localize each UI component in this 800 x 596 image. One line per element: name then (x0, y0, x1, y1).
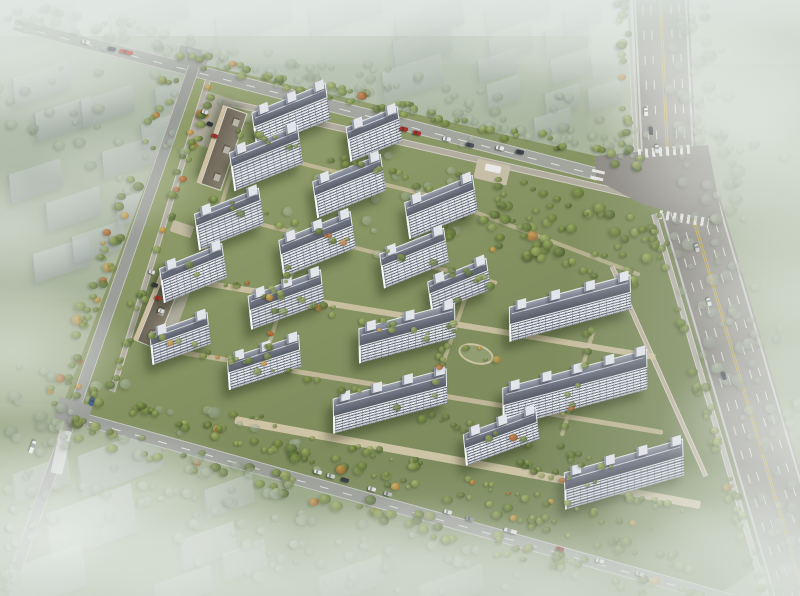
tree (793, 400, 800, 406)
tree (415, 75, 424, 82)
tree (75, 435, 84, 443)
tree (290, 477, 296, 482)
tree (558, 94, 564, 99)
city-ground-northwest (0, 36, 588, 298)
vehicle (466, 142, 475, 148)
tree (402, 108, 407, 112)
tree (737, 522, 745, 529)
tree (357, 504, 363, 509)
tree (103, 263, 114, 272)
tree (691, 212, 701, 221)
tree (250, 424, 260, 432)
tree (622, 537, 632, 546)
faded-building (44, 186, 102, 232)
tree (567, 224, 577, 233)
tree (1, 570, 12, 579)
tree (56, 403, 67, 413)
tree (675, 562, 685, 571)
tree (366, 88, 376, 96)
faded-building (380, 53, 444, 103)
tree (566, 533, 571, 537)
tree (462, 118, 468, 123)
tree (777, 325, 784, 331)
vehicle (400, 126, 409, 132)
tree (594, 542, 602, 549)
tree (329, 312, 335, 317)
mist-patch (675, 210, 800, 390)
tree (75, 302, 85, 311)
roof-bulkhead (284, 230, 295, 243)
tree (652, 497, 658, 502)
tree (493, 356, 502, 363)
vehicle-glass (343, 478, 346, 482)
tree (367, 75, 376, 82)
tree (489, 488, 493, 491)
vehicle (327, 473, 336, 479)
tree (664, 241, 669, 246)
tree (373, 250, 383, 258)
tree (680, 95, 692, 105)
tree (163, 44, 170, 50)
tree (296, 515, 308, 526)
tree (182, 488, 193, 498)
tree (230, 201, 236, 206)
tree (48, 438, 58, 446)
vehicle-glass (213, 134, 216, 138)
tree (444, 228, 456, 238)
tree (371, 508, 377, 513)
tree (410, 458, 416, 463)
tree (650, 577, 660, 586)
tree (731, 492, 737, 497)
tree (393, 404, 402, 411)
site-drive-left (109, 79, 211, 393)
tree (362, 216, 373, 225)
rooftop-unit (148, 331, 156, 340)
tree (675, 307, 681, 312)
tree (627, 214, 634, 220)
tree (286, 227, 297, 236)
tree (133, 405, 141, 412)
vehicle (556, 546, 565, 552)
roof-bulkhead (469, 423, 480, 436)
tree (73, 354, 83, 362)
tree (118, 19, 128, 27)
tree (615, 244, 621, 249)
tree (79, 418, 87, 424)
mist-patch (585, 460, 800, 580)
tree (728, 308, 737, 316)
tree (630, 281, 639, 288)
tree (196, 110, 205, 118)
vehicle-glass (695, 246, 699, 249)
tree (631, 228, 641, 236)
vehicle-glass (122, 49, 126, 54)
vehicle-glass (722, 374, 726, 377)
faded-building (153, 74, 203, 114)
tree (695, 389, 703, 395)
faded-building (221, 539, 268, 581)
lane-line (716, 197, 800, 592)
tree (52, 401, 58, 406)
building (379, 228, 449, 289)
roof-ridge (430, 264, 485, 287)
tree (251, 438, 259, 445)
tree (751, 283, 761, 292)
tree (566, 203, 572, 208)
tree (678, 14, 684, 19)
tree (620, 252, 627, 258)
tree (562, 570, 570, 577)
tree (446, 234, 454, 241)
tree (436, 364, 443, 370)
tree (49, 422, 60, 432)
tree (17, 364, 23, 369)
tree (371, 228, 377, 233)
tree (168, 191, 177, 199)
tree (10, 506, 18, 513)
tree (722, 135, 728, 140)
tree (626, 495, 635, 503)
tree (639, 589, 645, 594)
tree (202, 467, 212, 476)
crosswalk (638, 144, 691, 157)
tree (565, 94, 574, 102)
tree (514, 133, 519, 138)
tree (37, 421, 49, 431)
faded-building (114, 183, 170, 227)
tree (211, 196, 218, 202)
vehicle (636, 571, 645, 577)
tree (113, 375, 119, 381)
tree (340, 463, 350, 471)
tree (734, 178, 743, 186)
tree (115, 138, 124, 145)
lane-line (684, 0, 693, 154)
tree (196, 56, 204, 63)
roof-bulkhead (246, 184, 257, 197)
roof-bulkhead (200, 203, 211, 216)
faded-building (11, 60, 71, 107)
tree (328, 158, 335, 164)
tree (234, 441, 240, 446)
tree (443, 414, 450, 420)
tree (6, 426, 18, 437)
tree (445, 555, 454, 563)
tree (702, 180, 713, 190)
tree (357, 388, 363, 393)
vehicle-glass (445, 137, 448, 141)
tree (196, 121, 205, 129)
tree (298, 510, 306, 517)
lane-line (662, 213, 779, 596)
tree (29, 124, 39, 133)
mist-patch (290, 495, 550, 596)
tree (428, 109, 436, 116)
tree (781, 153, 791, 161)
park-walk (469, 208, 640, 276)
tree (419, 461, 423, 465)
tree (569, 402, 576, 408)
tree (627, 120, 634, 126)
tree (203, 102, 212, 110)
tree (193, 459, 201, 466)
tree (90, 381, 102, 391)
tree (717, 91, 723, 96)
tree (768, 413, 781, 424)
tree (689, 114, 702, 125)
building-facade (253, 98, 330, 149)
tree (613, 578, 620, 584)
faded-building (79, 84, 135, 128)
tree (590, 510, 598, 517)
tree (539, 130, 547, 137)
tree (107, 429, 114, 435)
tree (357, 72, 363, 77)
tree (785, 418, 798, 429)
tree (426, 186, 433, 192)
tree (733, 493, 741, 500)
tree (462, 345, 470, 351)
tree (456, 172, 462, 177)
tree (347, 99, 354, 105)
tree (332, 455, 341, 463)
tree (584, 209, 594, 217)
tree (408, 102, 415, 108)
tree (771, 582, 781, 591)
tree (195, 558, 205, 567)
tree (270, 488, 283, 499)
building (159, 243, 227, 303)
commercial-facade (196, 105, 226, 184)
tree (715, 128, 725, 136)
tree (61, 434, 68, 440)
tree (677, 89, 687, 97)
promenade-walk (234, 416, 700, 509)
tree (276, 75, 284, 81)
tree (719, 321, 726, 327)
tree (400, 111, 408, 118)
tree (128, 301, 134, 306)
faded-building (179, 521, 238, 571)
tree (31, 130, 36, 135)
tree (128, 338, 135, 344)
tree (149, 408, 155, 413)
tree (678, 177, 689, 186)
lane-line (700, 202, 800, 596)
tree (397, 254, 404, 260)
tree (618, 51, 626, 58)
tree (548, 214, 557, 221)
tree (208, 407, 220, 418)
commercial-strip-north (196, 105, 247, 191)
vehicle-glass (84, 40, 87, 44)
tree (693, 387, 700, 393)
tree (118, 234, 125, 240)
tree (712, 363, 724, 373)
tree (35, 411, 48, 422)
tree (181, 420, 189, 427)
tree (623, 266, 634, 276)
building-roof (427, 258, 488, 295)
mist-patch (100, 500, 480, 596)
tree (710, 213, 723, 224)
vehicle (644, 108, 648, 116)
tree (581, 362, 589, 369)
tree (55, 9, 64, 17)
tree (446, 97, 454, 103)
tree (173, 169, 180, 175)
tree (361, 536, 369, 543)
vehicle-glass (110, 47, 113, 51)
tree (268, 448, 274, 453)
tree (464, 173, 474, 182)
tree (363, 449, 372, 456)
tree (72, 331, 81, 339)
tree (302, 456, 308, 461)
tree (309, 498, 319, 506)
tree (467, 495, 473, 500)
tree (158, 76, 167, 83)
tree (496, 243, 503, 249)
tree (786, 536, 798, 547)
vehicle-glass (386, 492, 389, 496)
vehicle (212, 133, 219, 139)
tree (621, 0, 629, 3)
tree (728, 262, 737, 270)
tree (484, 358, 488, 362)
tree (357, 83, 366, 91)
tree (618, 39, 627, 47)
tree (682, 92, 694, 102)
tree (676, 319, 686, 327)
tree (550, 561, 560, 569)
tree (630, 154, 635, 158)
tree (21, 87, 30, 95)
tree (490, 247, 496, 252)
vehicle-glass (638, 572, 641, 576)
tree (602, 135, 609, 141)
tree (742, 514, 748, 519)
tree (713, 439, 722, 447)
vehicle (202, 109, 209, 115)
faded-building (393, 0, 464, 46)
tree (167, 340, 174, 346)
tree (313, 466, 321, 473)
tree (500, 215, 511, 224)
tree (607, 149, 617, 157)
tree (639, 226, 647, 233)
tree (262, 447, 268, 452)
tree (265, 129, 272, 135)
tree (494, 93, 504, 101)
tree (588, 269, 593, 274)
tree (137, 499, 147, 508)
tree (599, 147, 606, 153)
vehicle-glass (558, 547, 561, 551)
tree (141, 406, 152, 415)
tree (7, 120, 18, 129)
tree (527, 216, 533, 221)
tree (551, 106, 558, 112)
tree (543, 218, 554, 227)
tree (346, 237, 350, 241)
tree (314, 377, 321, 383)
tree (119, 28, 127, 35)
vehicle-glass (707, 300, 711, 303)
tree (540, 190, 548, 197)
tree (604, 142, 612, 149)
tree (92, 24, 103, 33)
building-facade (359, 321, 456, 363)
tree (403, 106, 409, 111)
tree (386, 249, 390, 253)
tree (744, 405, 756, 415)
tree (496, 536, 502, 541)
tree (446, 324, 452, 329)
tree (759, 437, 772, 448)
tree (187, 38, 196, 46)
tree (609, 465, 614, 469)
tree (191, 142, 198, 148)
tree (621, 235, 630, 243)
tree (703, 38, 712, 46)
building-facade (249, 285, 324, 330)
tree (690, 68, 698, 75)
tree (486, 282, 495, 289)
tree (55, 141, 65, 150)
tree (485, 435, 493, 442)
tree (743, 338, 756, 349)
tree (263, 488, 275, 498)
lane-line (660, 0, 669, 155)
tree (681, 509, 686, 513)
tree (780, 541, 787, 547)
tree (286, 368, 292, 373)
tree (371, 454, 377, 459)
tree (50, 7, 59, 15)
tree (61, 441, 72, 450)
tree (478, 346, 482, 350)
faded-building (417, 563, 485, 596)
south-field (0, 404, 800, 596)
tree (345, 551, 356, 560)
tree (528, 516, 536, 523)
tree (284, 280, 288, 284)
roof-bulkhead (155, 323, 166, 336)
tree (384, 472, 390, 477)
tree (154, 335, 159, 339)
tree (558, 554, 564, 559)
tree (405, 520, 414, 528)
tree (167, 409, 174, 415)
roof-ridge (348, 113, 396, 133)
tree (730, 160, 737, 166)
building-facade (280, 226, 355, 276)
tree (465, 476, 472, 482)
building (564, 438, 684, 509)
tree (709, 439, 717, 446)
tree (384, 152, 392, 159)
rooftop-unit (232, 118, 240, 127)
tree (539, 246, 550, 255)
tree (719, 47, 726, 53)
tree (93, 307, 99, 312)
faded-building (31, 236, 91, 283)
tree (719, 148, 730, 157)
tree (548, 499, 554, 504)
tree (143, 139, 149, 144)
